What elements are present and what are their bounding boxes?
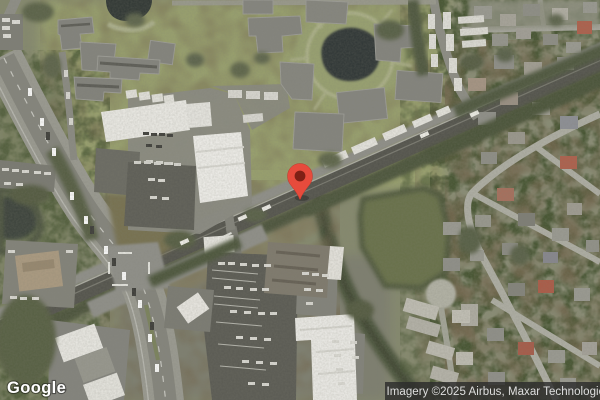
svg-text:Google: Google	[7, 379, 66, 397]
svg-text:Imagery ©2025 Airbus, Maxar Te: Imagery ©2025 Airbus, Maxar Technologies	[387, 386, 600, 398]
